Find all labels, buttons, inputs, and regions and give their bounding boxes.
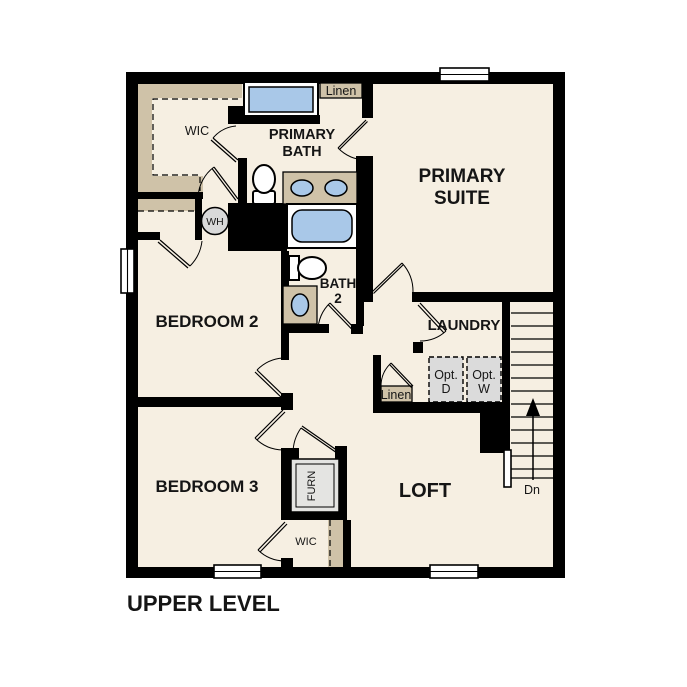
room-label-loft: LOFT <box>399 480 451 502</box>
label-opt-dryer-1: Opt. <box>434 368 458 382</box>
room-label-wic-primary: WIC <box>185 124 209 138</box>
room-label-primary-bath-2: BATH <box>282 144 321 160</box>
label-opt-washer-2: W <box>478 382 490 396</box>
toilet-bowl <box>253 165 275 193</box>
window-bedroom3 <box>214 565 261 578</box>
label-linen-hall: Linen <box>381 388 412 402</box>
stair-railing <box>504 450 511 487</box>
room-label-wic-bedroom3: WIC <box>295 536 316 548</box>
label-stairs-down: Dn <box>524 483 540 497</box>
floor-plan-page: WIC PRIMARY BATH Linen PRIMARY SUITE WH … <box>0 0 687 687</box>
label-furnace: FURN <box>306 471 318 502</box>
room-label-primary-suite-2: SUITE <box>434 188 490 209</box>
room-label-bedroom2: BEDROOM 2 <box>156 312 259 331</box>
floor-plan-upper-level: WIC PRIMARY BATH Linen PRIMARY SUITE WH … <box>0 0 687 687</box>
room-label-bath2-2: 2 <box>334 291 342 306</box>
page-title: UPPER LEVEL <box>127 591 280 616</box>
bathtub <box>292 210 352 242</box>
window-primary-suite <box>440 68 489 81</box>
room-label-primary-suite-1: PRIMARY <box>419 166 506 187</box>
vanity-sink-left <box>291 180 313 196</box>
window-bedroom2 <box>121 249 134 293</box>
bath2-sink <box>292 294 309 316</box>
label-linen-bath: Linen <box>326 84 357 98</box>
room-label-bedroom3: BEDROOM 3 <box>156 477 259 496</box>
bedroom2-closet-shelf <box>138 199 195 211</box>
shower-pan <box>249 87 313 112</box>
label-opt-washer-1: Opt. <box>472 368 496 382</box>
room-label-bath2-1: BATH <box>320 276 357 291</box>
room-label-laundry: LAUNDRY <box>428 317 501 334</box>
room-label-primary-bath-1: PRIMARY <box>269 127 336 143</box>
vanity-sink-right <box>325 180 347 196</box>
label-water-heater: WH <box>206 216 224 228</box>
label-opt-dryer-2: D <box>441 382 450 396</box>
window-loft <box>430 565 478 578</box>
